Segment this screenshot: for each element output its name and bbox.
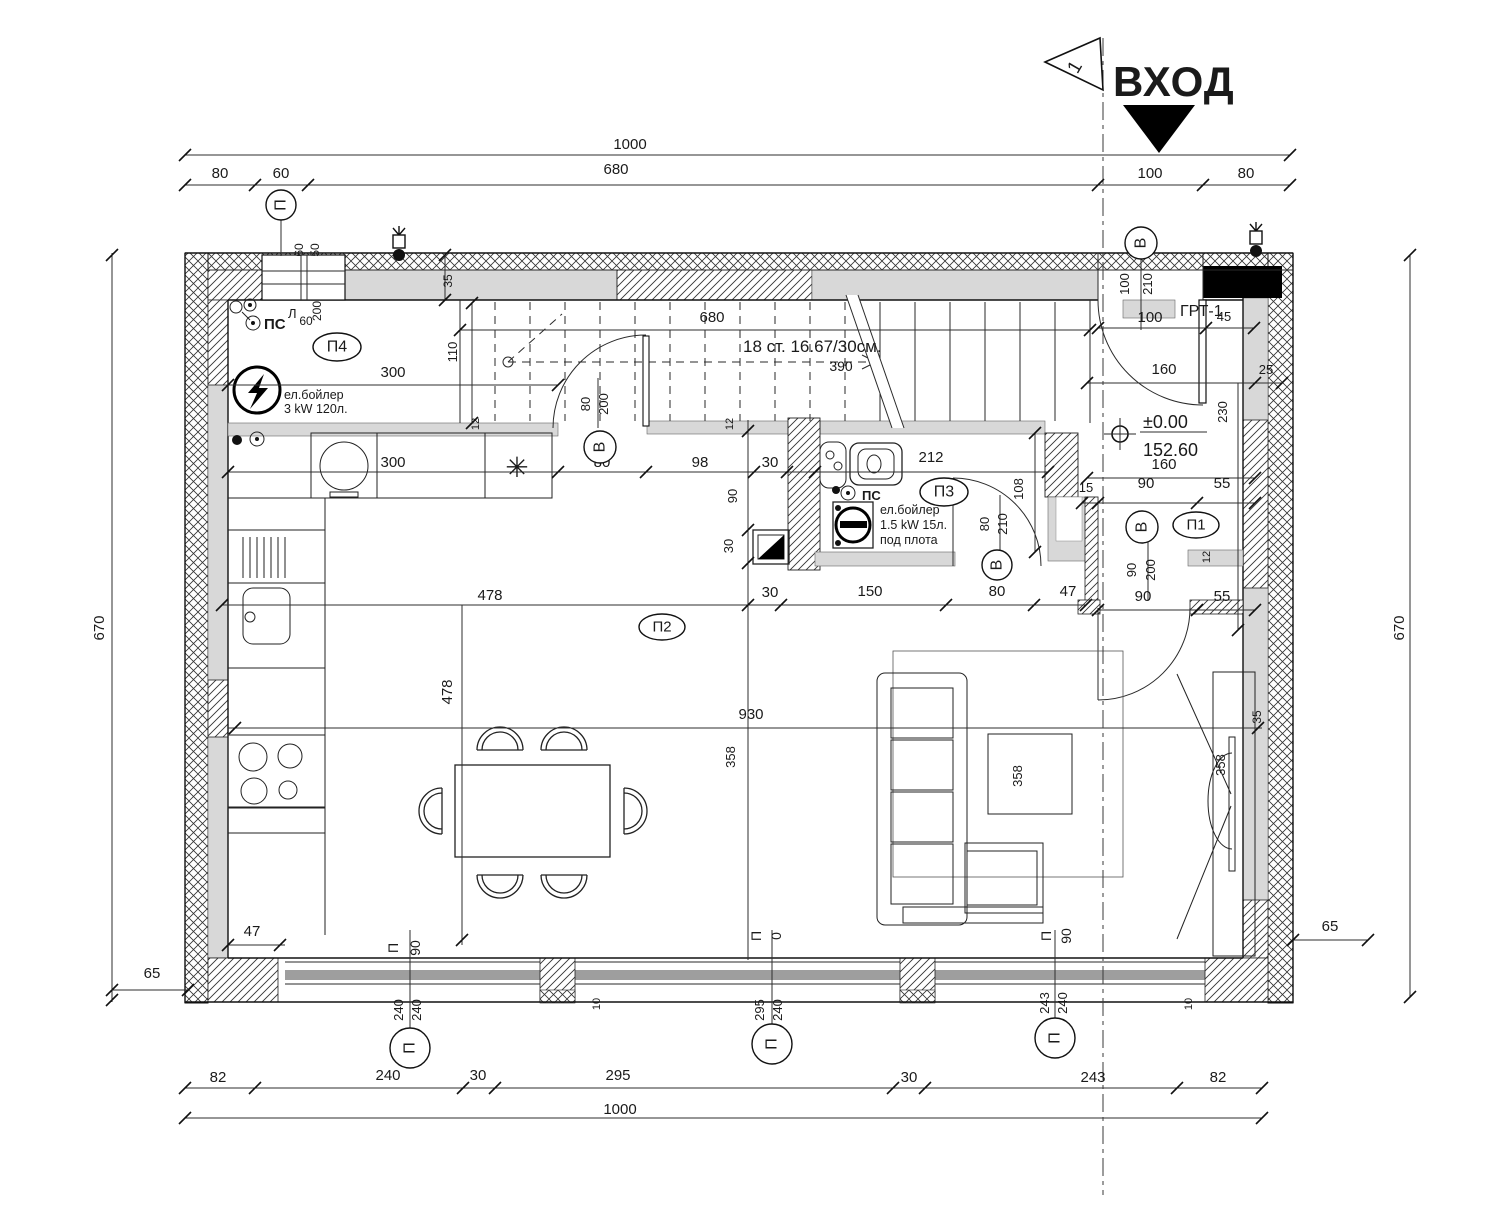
dim-label: 212 [918,449,943,466]
window-top-left [262,255,345,300]
dim-label: 47 [1060,583,1077,600]
axis-tag-П2: П2 [639,614,685,640]
dim-label: 240 [391,999,406,1021]
dim-label: 82 [1210,1069,1227,1086]
dim-label: 12 [1201,551,1213,563]
ps-kitchen-icons [230,299,260,330]
dim-label: 240 [409,999,424,1021]
dim-label: 100 [1137,165,1162,182]
dim-label: 30 [762,454,779,471]
dim-label: 90 [1135,588,1152,605]
basin-icon [850,443,902,485]
axis-tag-П: П [752,1024,792,1064]
chair-icon [541,875,587,898]
dim-label: 243 [1037,992,1052,1014]
kitchen-boiler-note-1: ел.бойлер [284,388,344,402]
bath-boiler-note-3: под плота [880,533,938,547]
axis-tag-П1: П1 [1173,512,1219,538]
dim-label: 295 [605,1067,630,1084]
axis-tags: ПВП4ВП3ВВП1П2ППП [266,190,1219,1068]
dim-label: П [385,943,401,953]
dim-label: 358 [723,746,738,768]
dish-rack-icon [243,537,285,578]
stair-break-mask [846,295,904,428]
dim-label: 90 [1138,475,1155,492]
floor-plan-drawing: ВХОД 1 18 ст. 16.67/30см. ГРТ-1 ±0.00 15… [0,0,1500,1224]
svg-text:П: П [402,1042,419,1054]
dim-label: 100 [1137,309,1162,326]
kitchen-sink-icon [243,588,290,644]
dim-label: 90 [1058,928,1074,944]
wall-lines [185,253,1293,1003]
axis-tag-В: В [1125,227,1157,259]
dim-label: 358 [1010,765,1025,787]
dim-label: 160 [1151,361,1176,378]
dim-label: 230 [1215,401,1230,423]
svg-text:В: В [1134,522,1151,533]
dim-label: 80 [977,517,992,531]
kitchen-boiler-icon [234,367,280,413]
dim-label: 12 [470,418,482,430]
dim-label: П [1038,931,1054,941]
vent-icon [393,226,405,261]
ps-kitchen-label: ПС [264,316,286,333]
chair-icon [477,727,523,750]
dim-label: 65 [1322,918,1339,935]
dim-label: 160 [1151,456,1176,473]
dim-label: 300 [380,454,405,471]
dim-label: 35 [441,274,455,288]
dim-label: 25 [1259,362,1273,377]
living-room [877,651,1255,956]
dim-label: 10 [1183,998,1195,1010]
dim-label: 1000 [613,136,646,153]
svg-text:П: П [764,1038,781,1050]
dim-label: 80 [578,397,593,411]
dim-label: 12 [724,418,736,430]
dim-label: 80 [989,583,1006,600]
floor-drain-icon [753,530,789,564]
dim-label: 108 [1011,478,1026,500]
coffee-table [988,734,1072,814]
axis-tag-П: П [390,1028,430,1068]
bath-boiler-note-2: 1.5 kW 15л. [880,518,947,532]
svg-text:В: В [1133,238,1150,249]
dim-label: 295 [752,999,767,1021]
axis-tag-П: П [266,190,296,220]
dim-label: 300 [380,364,405,381]
dining-table [455,765,610,857]
dim-label: 478 [477,587,502,604]
kitchen [228,299,552,935]
dim-label: 100 [1117,273,1132,295]
dim-label: 240 [770,999,785,1021]
lamp-label: Л [288,306,297,321]
socket-icon [232,435,242,445]
dim-label: 30 [721,539,736,553]
dim-label: 80 [1238,165,1255,182]
dim-label: 680 [699,309,724,326]
grt-element [1203,266,1282,298]
dim-label: 210 [1140,273,1155,295]
dim-label: 240 [1055,992,1070,1014]
dim-label: 47 [244,923,261,940]
dim-label: 200 [596,393,611,415]
axis-tag-П3: П3 [920,478,968,506]
svg-text:П2: П2 [652,619,671,636]
dim-label: 680 [603,161,628,178]
entrance-arrow-icon [1123,105,1195,153]
dim-label: 30 [901,1069,918,1086]
axis-tag-П4: П4 [313,333,361,361]
dim-label: 150 [857,583,882,600]
svg-text:В: В [989,560,1006,571]
dim-label: 30 [762,584,779,601]
kitchen-boiler-note-2: 3 kW 120л. [284,402,348,416]
dim-label: 50 [308,243,322,257]
dim-label: 670 [1391,615,1408,640]
dim-label: 210 [995,513,1010,535]
sofa [877,673,1043,925]
ps-bath-icon [832,486,855,500]
exterior-walls [185,253,1293,1003]
dim-label: П [748,931,764,941]
dim-label: 110 [445,342,460,363]
svg-text:П: П [273,199,290,211]
dim-label: 35 [1250,710,1264,724]
bath-boiler-note-1: ел.бойлер [880,503,940,517]
dim-label: 240 [375,1067,400,1084]
dining-area [419,727,647,898]
fridge-icon: ✳ [505,452,528,483]
dim-label: 90 [1124,563,1139,577]
svg-text:П: П [1047,1032,1064,1044]
dim-label: 80 [212,165,229,182]
dim-label: 45 [1217,309,1231,324]
bath-washing-machine-icon [833,502,873,548]
ps-bath-label: ПС [862,488,881,503]
chair-icon [477,875,523,898]
dim-label: 10 [591,998,603,1010]
dim-label: 670 [91,615,108,640]
chair-icon [419,788,442,834]
dim-label: 82 [210,1069,227,1086]
dim-label: 55 [1214,588,1231,605]
dim-label: 200 [1143,559,1158,581]
dim-label: 90 [407,940,423,956]
stairs-note: 18 ст. 16.67/30см. [743,337,882,356]
washing-machine-icon [320,442,368,490]
dim-label: 1000 [603,1101,636,1118]
hall-door [1098,608,1190,700]
dim-label: 65 [144,965,161,982]
dim-label: 243 [1080,1069,1105,1086]
svg-text:П4: П4 [327,339,348,356]
floor-plan-page: { "entrance": { "label": "ВХОД", "flag_n… [0,0,1500,1224]
dim-label: 90 [725,489,740,503]
dim-label: 358 [1213,754,1228,776]
stove-icon [228,735,325,808]
axis-tag-В: В [1126,511,1158,543]
level-mark-icon [1104,418,1136,450]
dim-label: 0 [768,932,784,940]
dim-label: 98 [692,454,709,471]
chair-icon [624,788,647,834]
axis-tag-В: В [584,431,616,463]
annotation-text: ВХОД 1 18 ст. 16.67/30см. ГРТ-1 ±0.00 15… [264,57,1235,547]
axis-tag-В: В [982,550,1012,580]
dim-label: 55 [1214,475,1231,492]
vent-icon [1250,222,1262,257]
entrance-label: ВХОД [1113,58,1235,105]
chair-icon [541,727,587,750]
svg-text:П3: П3 [934,484,955,501]
stairs [460,295,1090,428]
dim-label: 930 [738,706,763,723]
axis-tag-П: П [1035,1018,1075,1058]
dim-label: 15 [1079,480,1093,495]
dim-label: 390 [829,358,853,374]
dim-label: 478 [439,679,456,704]
dim-label: 60 [292,243,306,257]
dim-label: 30 [470,1067,487,1084]
svg-text:В: В [592,442,609,453]
dim-label: 200 [310,301,324,321]
svg-text:П1: П1 [1186,517,1205,534]
level-value: ±0.00 [1143,412,1188,432]
dim-label: 60 [273,165,290,182]
